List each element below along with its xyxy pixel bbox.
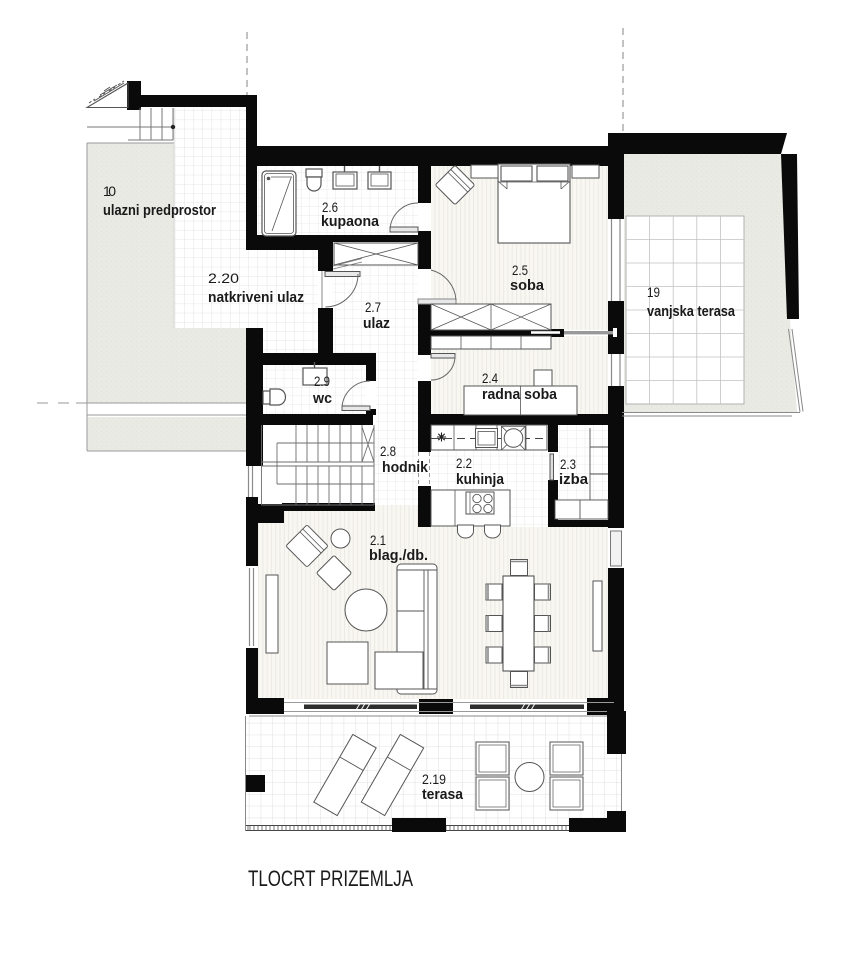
svg-text:19: 19 [647, 284, 660, 300]
svg-text:2.7: 2.7 [365, 299, 381, 315]
svg-text:TLOCRT PRIZEMLJA: TLOCRT PRIZEMLJA [248, 866, 413, 891]
svg-text:kuhinja: kuhinja [456, 471, 505, 488]
svg-text:wc: wc [312, 390, 332, 407]
svg-text:blag./db.: blag./db. [369, 547, 428, 564]
svg-text:10: 10 [103, 183, 116, 199]
svg-text:2.19: 2.19 [422, 771, 446, 787]
svg-text:2.2: 2.2 [456, 455, 472, 471]
svg-text:ulaz: ulaz [363, 315, 390, 332]
svg-text:2.1: 2.1 [370, 532, 386, 548]
svg-text:izba: izba [559, 471, 589, 488]
svg-text:2.9: 2.9 [314, 373, 330, 389]
svg-text:ulazni predprostor: ulazni predprostor [103, 202, 216, 219]
svg-text:terasa: terasa [422, 786, 464, 803]
svg-text:hodnik: hodnik [382, 459, 429, 476]
svg-text:soba: soba [510, 277, 545, 294]
svg-text:2.20: 2.20 [208, 270, 239, 286]
svg-text:kupaona: kupaona [321, 213, 380, 230]
svg-text:natkriveni ulaz: natkriveni ulaz [208, 289, 304, 306]
svg-text:2.8: 2.8 [380, 443, 396, 459]
svg-text:2.3: 2.3 [560, 456, 576, 472]
svg-text:2.5: 2.5 [512, 262, 528, 278]
svg-text:vanjska terasa: vanjska terasa [647, 303, 736, 320]
svg-text:radna soba: radna soba [482, 386, 558, 403]
svg-text:2.4: 2.4 [482, 370, 498, 386]
